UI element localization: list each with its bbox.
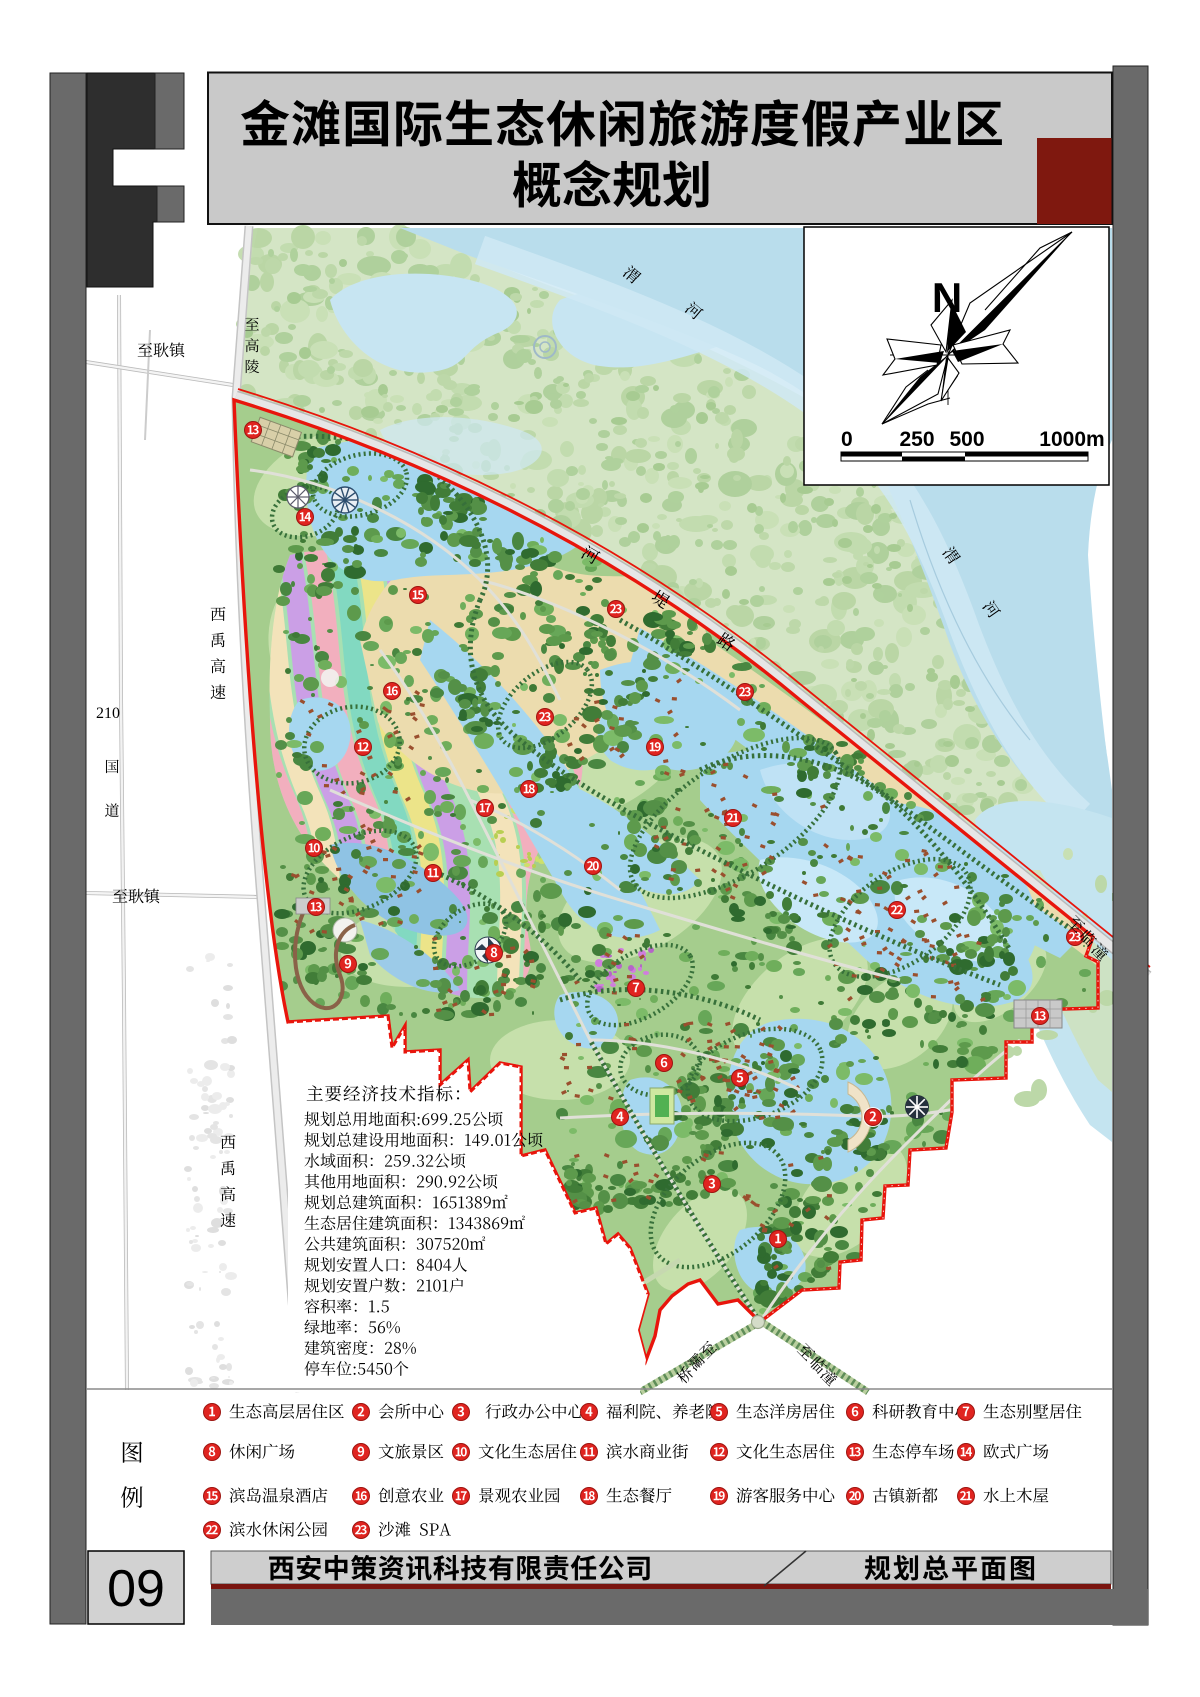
svg-text:N: N: [932, 274, 962, 321]
svg-text:09: 09: [107, 1560, 165, 1618]
svg-text:250: 250: [899, 428, 934, 451]
svg-text:210: 210: [96, 705, 120, 722]
svg-text:0: 0: [841, 428, 853, 451]
svg-text:1000m: 1000m: [1039, 428, 1104, 451]
svg-text:500: 500: [949, 428, 984, 451]
